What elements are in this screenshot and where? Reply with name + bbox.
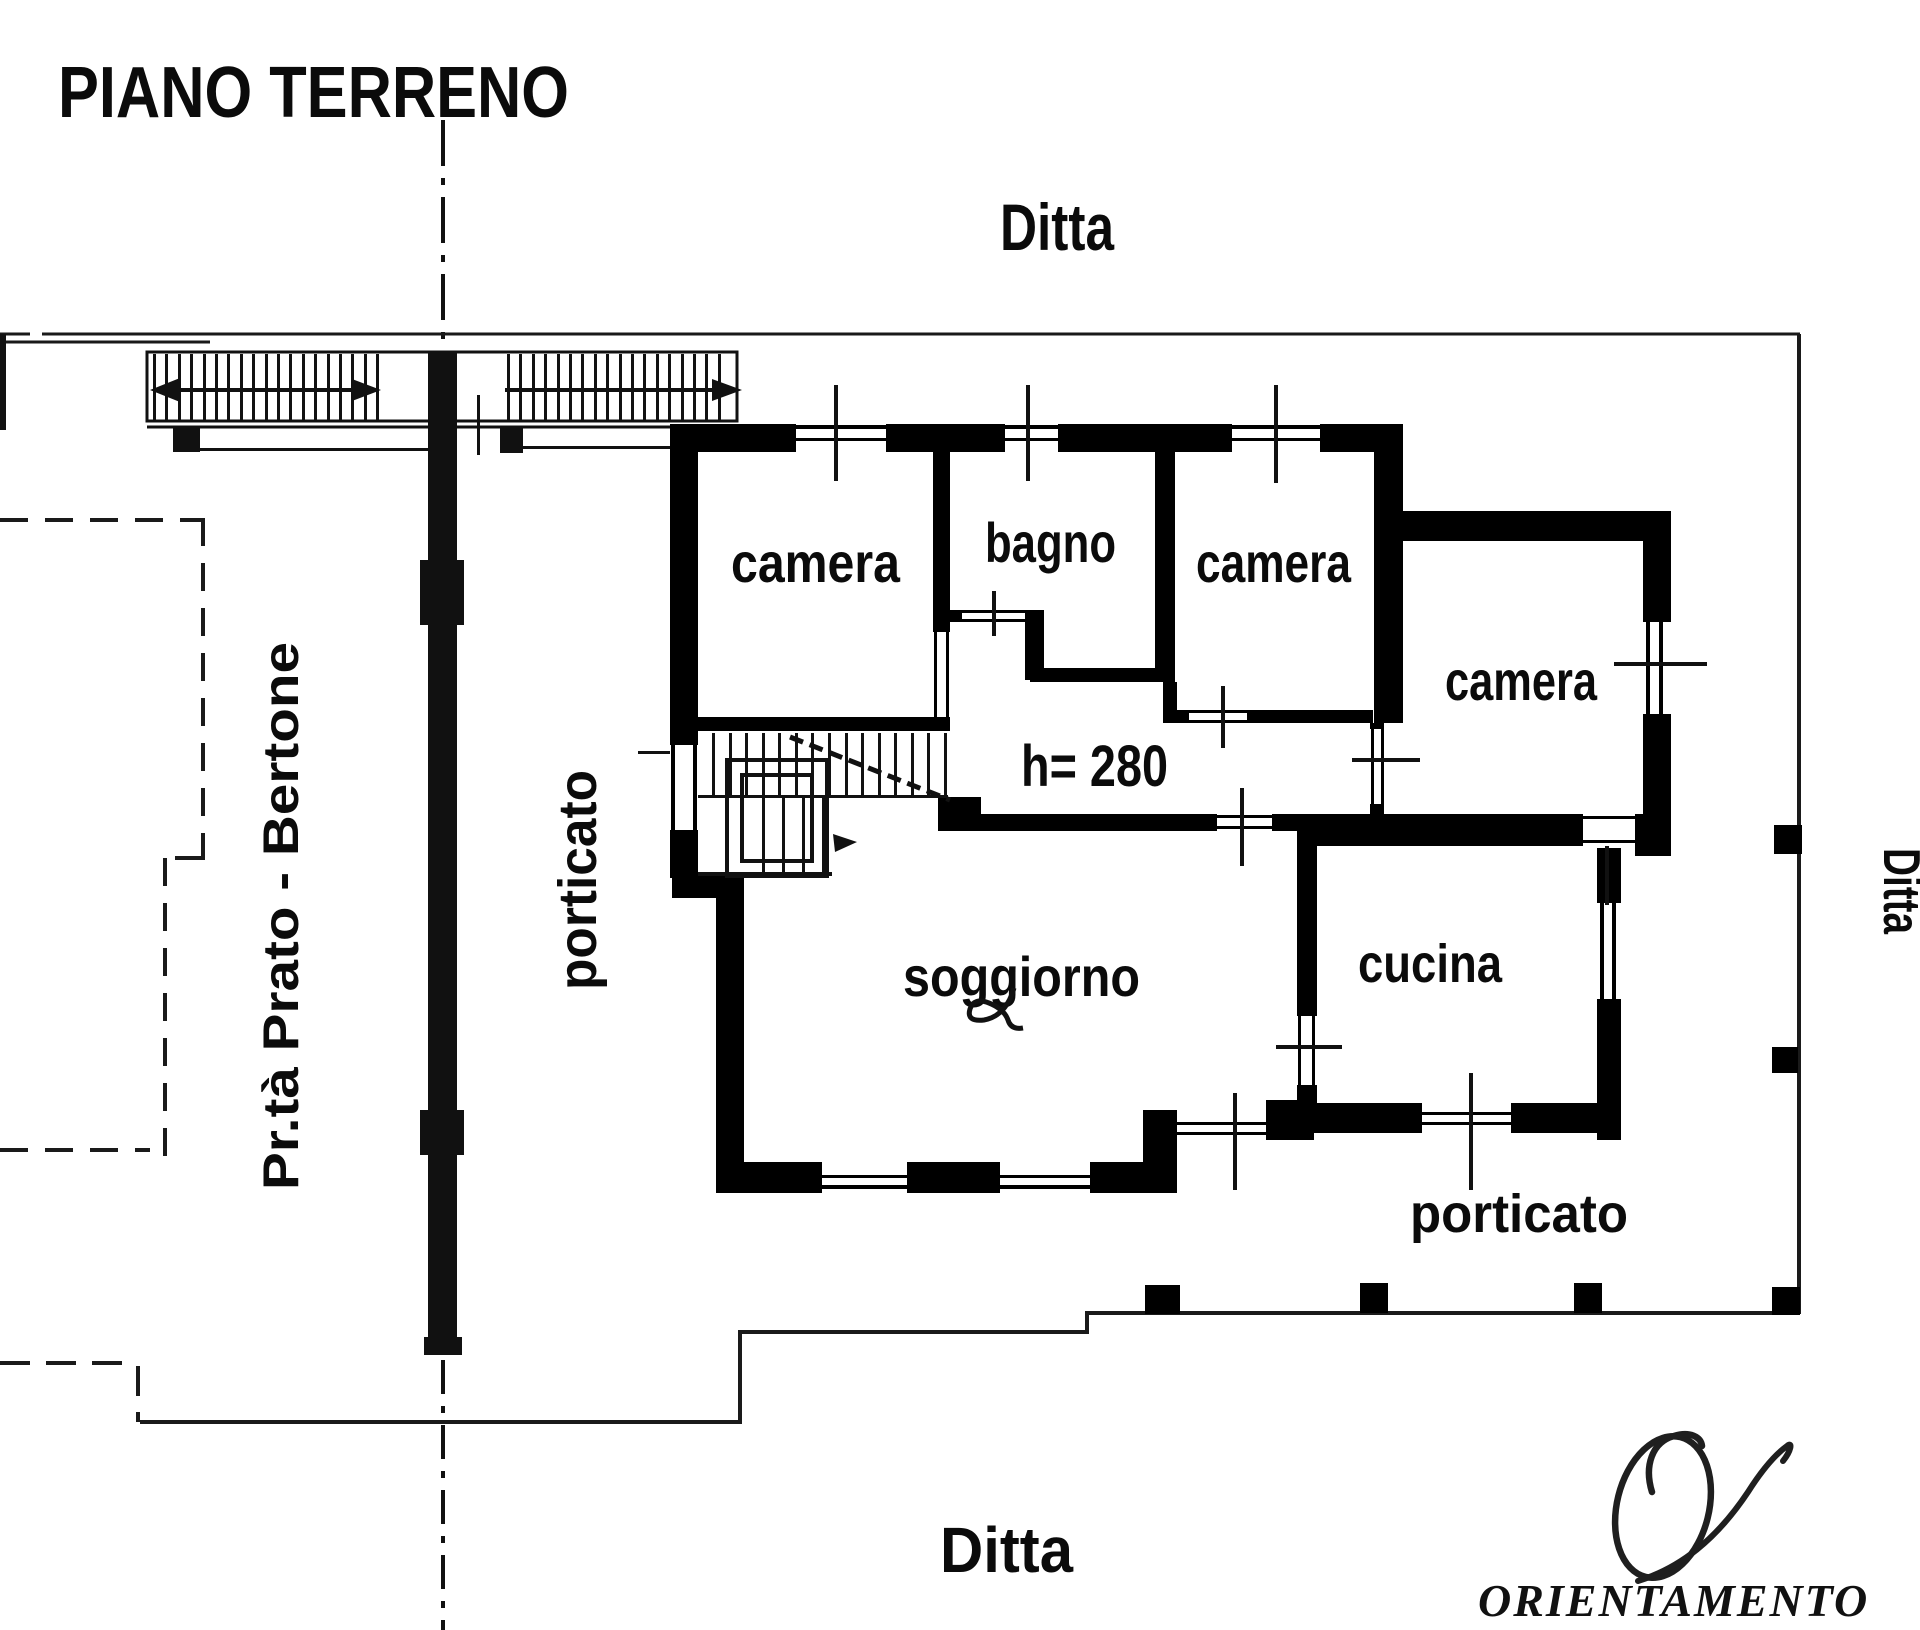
svg-text:Pr.tà Prato - Bertone: Pr.tà Prato - Bertone <box>253 642 309 1190</box>
svg-text:Ditta: Ditta <box>940 1514 1073 1586</box>
svg-text:camera: camera <box>1196 531 1352 594</box>
svg-text:porticato: porticato <box>1410 1184 1628 1244</box>
svg-text:porticato: porticato <box>548 770 608 990</box>
svg-text:soggiorno: soggiorno <box>903 945 1140 1008</box>
svg-text:Ditta: Ditta <box>1000 190 1115 264</box>
svg-text:h= 280: h= 280 <box>1021 734 1168 799</box>
svg-text:camera: camera <box>731 531 901 594</box>
svg-text:PIANO TERRENO: PIANO TERRENO <box>58 53 569 133</box>
svg-text:camera: camera <box>1445 649 1598 712</box>
svg-text:cucina: cucina <box>1358 934 1503 994</box>
svg-text:bagno: bagno <box>985 511 1116 574</box>
svg-text:Ditta: Ditta <box>1872 848 1920 935</box>
svg-text:ORIENTAMENTO: ORIENTAMENTO <box>1478 1575 1869 1626</box>
